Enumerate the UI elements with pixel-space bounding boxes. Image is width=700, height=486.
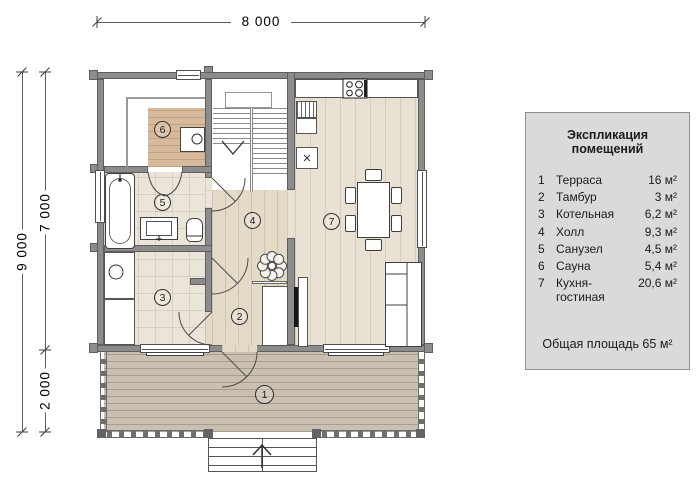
- interior-wall-vertical: [205, 208, 212, 312]
- railing-post: [416, 429, 425, 438]
- interior-wall-vertical: [205, 79, 212, 178]
- room-number: 6: [160, 124, 166, 136]
- chair: [365, 239, 382, 251]
- legend-row-name: Котельная: [556, 207, 645, 221]
- chair: [345, 187, 356, 204]
- sink-basin: [146, 221, 172, 236]
- dimension-label-height-terrace: 2 000: [38, 369, 53, 413]
- tv: [294, 287, 298, 327]
- room-number: 3: [160, 292, 166, 304]
- chair: [345, 215, 356, 232]
- stair-treads-left: [213, 108, 250, 145]
- entry-steps-divider: [262, 438, 263, 472]
- kitchen-sink-cabinet: [296, 147, 318, 169]
- legend-row: 5 Санузел 4,5 м²: [538, 242, 677, 259]
- legend-panel: Экспликация помещений 1 Терраса 16 м² 2 …: [525, 112, 690, 370]
- legend-row-number: 4: [538, 225, 556, 239]
- legend-row-name: Санузел: [556, 242, 645, 256]
- legend-row-name: Тамбур: [556, 190, 655, 204]
- legend-row-number: 2: [538, 190, 556, 204]
- legend-row-number: 3: [538, 207, 556, 221]
- stair-treads-right: [253, 108, 287, 174]
- corner-nub: [424, 343, 433, 353]
- legend-row-area: 9,3 м²: [645, 225, 677, 239]
- room-marker-boiler: 3: [154, 289, 171, 306]
- entrance-door-opening: [222, 345, 257, 352]
- sauna-heater: [180, 127, 205, 152]
- legend-row-name: Кухня-гостиная: [556, 276, 638, 304]
- sauna-bath-wall: [104, 166, 148, 173]
- legend-total-area: Общая площадь 65 м²: [538, 337, 677, 359]
- interior-wall-stub: [190, 278, 206, 285]
- sauna-partition: [126, 97, 128, 167]
- window: [417, 170, 427, 248]
- legend-row-name: Терраса: [556, 173, 648, 187]
- plant-shelf: [252, 281, 287, 284]
- kitchen-living-floor: [287, 190, 295, 238]
- kitchen-counter: [295, 79, 418, 98]
- legend-row: 4 Холл 9,3 м²: [538, 225, 677, 242]
- window-sill: [146, 352, 204, 356]
- legend-row-area: 6,2 м²: [645, 207, 677, 221]
- room-marker-kitchen-living: 7: [323, 213, 340, 230]
- sofa: [385, 262, 422, 347]
- terrace-railing-bottom: [100, 430, 210, 438]
- legend-row-area: 16 м²: [648, 173, 677, 187]
- stair-handrail: [225, 92, 272, 108]
- legend-row-number: 7: [538, 276, 556, 290]
- legend-row-number: 6: [538, 259, 556, 273]
- legend-row-name: Холл: [556, 225, 645, 239]
- chair: [391, 187, 402, 204]
- legend-row: 7 Кухня-гостиная 20,6 м²: [538, 276, 677, 293]
- room-marker-vestibule: 2: [231, 308, 248, 325]
- railing-post: [97, 429, 106, 438]
- tv-console: [298, 277, 308, 347]
- room-number: 4: [250, 215, 256, 227]
- corner-nub: [90, 243, 98, 252]
- legend-title: Экспликация помещений: [538, 128, 677, 156]
- room-number: 1: [262, 389, 268, 401]
- legend-row-area: 20,6 м²: [638, 276, 677, 290]
- terrace-railing-right: [418, 352, 425, 432]
- window: [95, 170, 105, 223]
- boiler-cabinet: [104, 299, 135, 345]
- legend-row: 3 Котельная 6,2 м²: [538, 207, 677, 224]
- dimension-label-height-house: 7 000: [38, 191, 53, 235]
- legend-row: 6 Сауна 5,4 м²: [538, 259, 677, 276]
- railing-post: [312, 429, 321, 438]
- room-number: 2: [237, 311, 243, 323]
- dimension-label-width: 8 000: [231, 14, 291, 29]
- bathtub-basin: [109, 178, 131, 244]
- legend-row: 1 Терраса 16 м²: [538, 173, 677, 190]
- bath-door-opening: [205, 178, 212, 208]
- sauna-bath-wall: [182, 166, 212, 173]
- window: [176, 70, 201, 80]
- room-number: 5: [160, 197, 166, 209]
- legend-row: 2 Тамбур 3 м²: [538, 190, 677, 207]
- chair: [391, 215, 402, 232]
- room-marker-bathroom: 5: [154, 194, 171, 211]
- boiler-unit: [104, 252, 135, 299]
- boiler-door-opening: [205, 312, 212, 345]
- dining-table: [357, 182, 390, 238]
- legend-row-area: 3 м²: [655, 190, 677, 204]
- stair-stringer: [250, 108, 253, 192]
- room-number: 7: [329, 216, 335, 228]
- floor-plan-drawing: 1 2 3 4 5 6 7 8 000 9 000 7 000 2 000: [0, 0, 700, 486]
- room-marker-sauna: 6: [154, 121, 171, 138]
- legend-row-number: 5: [538, 242, 556, 256]
- terrace-railing-left: [100, 352, 107, 432]
- sauna-partition: [126, 97, 205, 99]
- toilet: [186, 218, 203, 242]
- legend-row-area: 4,5 м²: [645, 242, 677, 256]
- terrace-railing-bottom: [315, 430, 425, 438]
- legend-row-number: 1: [538, 173, 556, 187]
- corner-nub: [204, 66, 213, 73]
- corner-nub: [424, 70, 433, 80]
- dimension-label-height-total: 9 000: [15, 230, 30, 274]
- chair: [365, 169, 382, 181]
- wardrobe: [262, 286, 288, 346]
- room-marker-terrace: 1: [255, 385, 274, 404]
- corner-nub: [89, 343, 98, 353]
- corner-nub: [89, 70, 98, 80]
- exterior-wall-top: [97, 72, 425, 79]
- legend-row-name: Сауна: [556, 259, 645, 273]
- kitchen-cabinet: [296, 118, 317, 134]
- legend-row-area: 5,4 м²: [645, 259, 677, 273]
- stair-wall: [287, 72, 295, 190]
- kitchen-cabinet-rack: [296, 101, 317, 118]
- window-sill: [328, 352, 384, 356]
- railing-post: [204, 429, 213, 438]
- room-marker-hall: 4: [244, 212, 261, 229]
